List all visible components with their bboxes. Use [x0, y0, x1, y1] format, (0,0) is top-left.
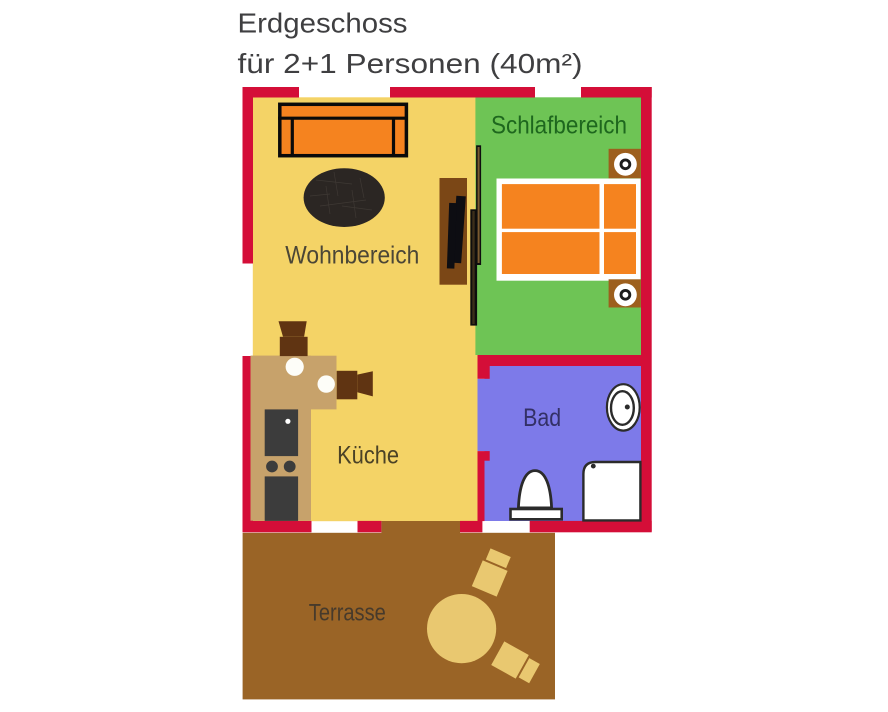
svg-text:Bad: Bad — [523, 404, 561, 432]
svg-text:Erdgeschoss: Erdgeschoss — [238, 8, 408, 39]
svg-text:für 2+1 Personen (40m²): für 2+1 Personen (40m²) — [238, 48, 583, 79]
svg-text:Schlafbereich: Schlafbereich — [491, 112, 627, 140]
svg-text:Küche: Küche — [337, 441, 399, 469]
svg-text:Wohnbereich: Wohnbereich — [285, 241, 419, 269]
svg-text:Terrasse: Terrasse — [309, 600, 386, 627]
